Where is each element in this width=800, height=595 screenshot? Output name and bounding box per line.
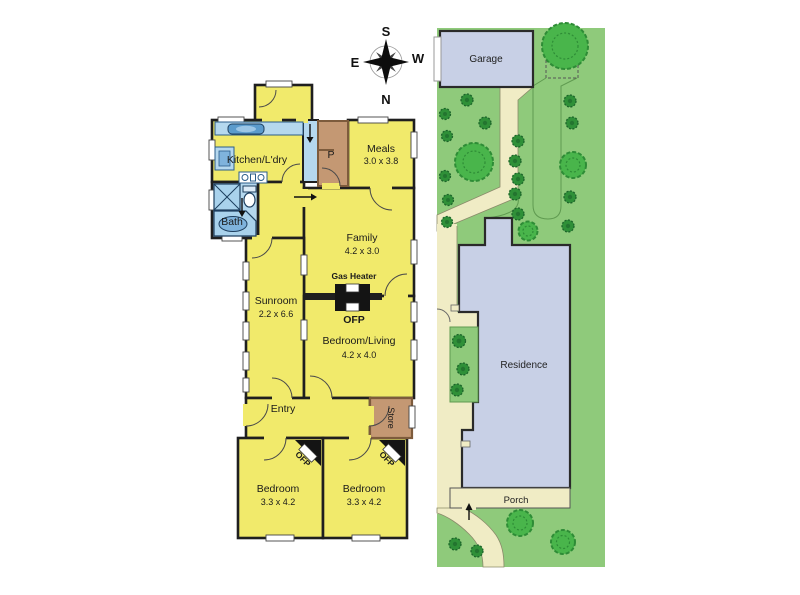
porch-label: Porch <box>504 495 529 506</box>
garage-door <box>434 37 441 81</box>
entry-label: Entry <box>271 403 296 415</box>
family-dims: 4.2 x 3.0 <box>345 246 380 256</box>
room-rear-porch <box>255 85 312 122</box>
tree-icon <box>455 143 493 181</box>
floor-plan: Kitchen/L'dry P Meals 3.0 x 3.8 Bath Fam… <box>209 81 417 541</box>
sink-bowl-icon <box>236 126 256 132</box>
bedroom-left-label: Bedroom <box>257 483 300 495</box>
chimney-wall <box>370 293 382 300</box>
toilet-cistern-icon <box>243 186 256 192</box>
pantry-label: P <box>327 149 334 161</box>
ofp-center-label: OFP <box>343 314 365 326</box>
compass-rose: S E W N <box>351 24 425 107</box>
chimney-wall <box>304 293 335 300</box>
garage-label: Garage <box>469 54 503 65</box>
meals-label: Meals <box>367 143 395 155</box>
toilet-icon <box>244 193 255 207</box>
room-hall <box>258 182 304 238</box>
fireplace-insert <box>346 284 359 292</box>
kitchen-label: Kitchen/L'dry <box>227 154 288 166</box>
residence-label: Residence <box>500 360 548 371</box>
store-label: Store <box>386 407 396 429</box>
meals-dims: 3.0 x 3.8 <box>364 156 399 166</box>
bath-label: Bath <box>221 216 243 228</box>
family-label: Family <box>347 232 379 244</box>
bedroom-living-dims: 4.2 x 4.0 <box>342 350 377 360</box>
step-marker <box>451 305 459 311</box>
compass-west: W <box>412 51 425 66</box>
site-plan: Garage Residence Porch <box>434 23 605 567</box>
bedroom-right-label: Bedroom <box>343 483 386 495</box>
sunroom-dims: 2.2 x 6.6 <box>259 309 294 319</box>
bedroom-right-dims: 3.3 x 4.2 <box>347 497 382 507</box>
fireplace-insert <box>346 303 359 311</box>
compass-north: N <box>381 92 390 107</box>
tree-icon <box>507 510 533 536</box>
step-marker <box>461 441 470 447</box>
compass-east: E <box>351 55 360 70</box>
floorplan-page: Kitchen/L'dry P Meals 3.0 x 3.8 Bath Fam… <box>0 0 800 595</box>
tree-icon <box>519 222 538 241</box>
tree-icon <box>551 530 575 554</box>
bedroom-living-label: Bedroom/Living <box>323 335 396 347</box>
room-entry <box>246 398 370 438</box>
bedroom-left-dims: 3.3 x 4.2 <box>261 497 296 507</box>
compass-south: S <box>382 24 391 39</box>
gas-heater-label: Gas Heater <box>332 271 378 281</box>
tree-icon <box>542 23 588 69</box>
sunroom-label: Sunroom <box>255 295 298 307</box>
plan-canvas: Kitchen/L'dry P Meals 3.0 x 3.8 Bath Fam… <box>0 0 800 595</box>
compass-main-star <box>363 39 409 85</box>
tree-icon <box>560 152 586 178</box>
